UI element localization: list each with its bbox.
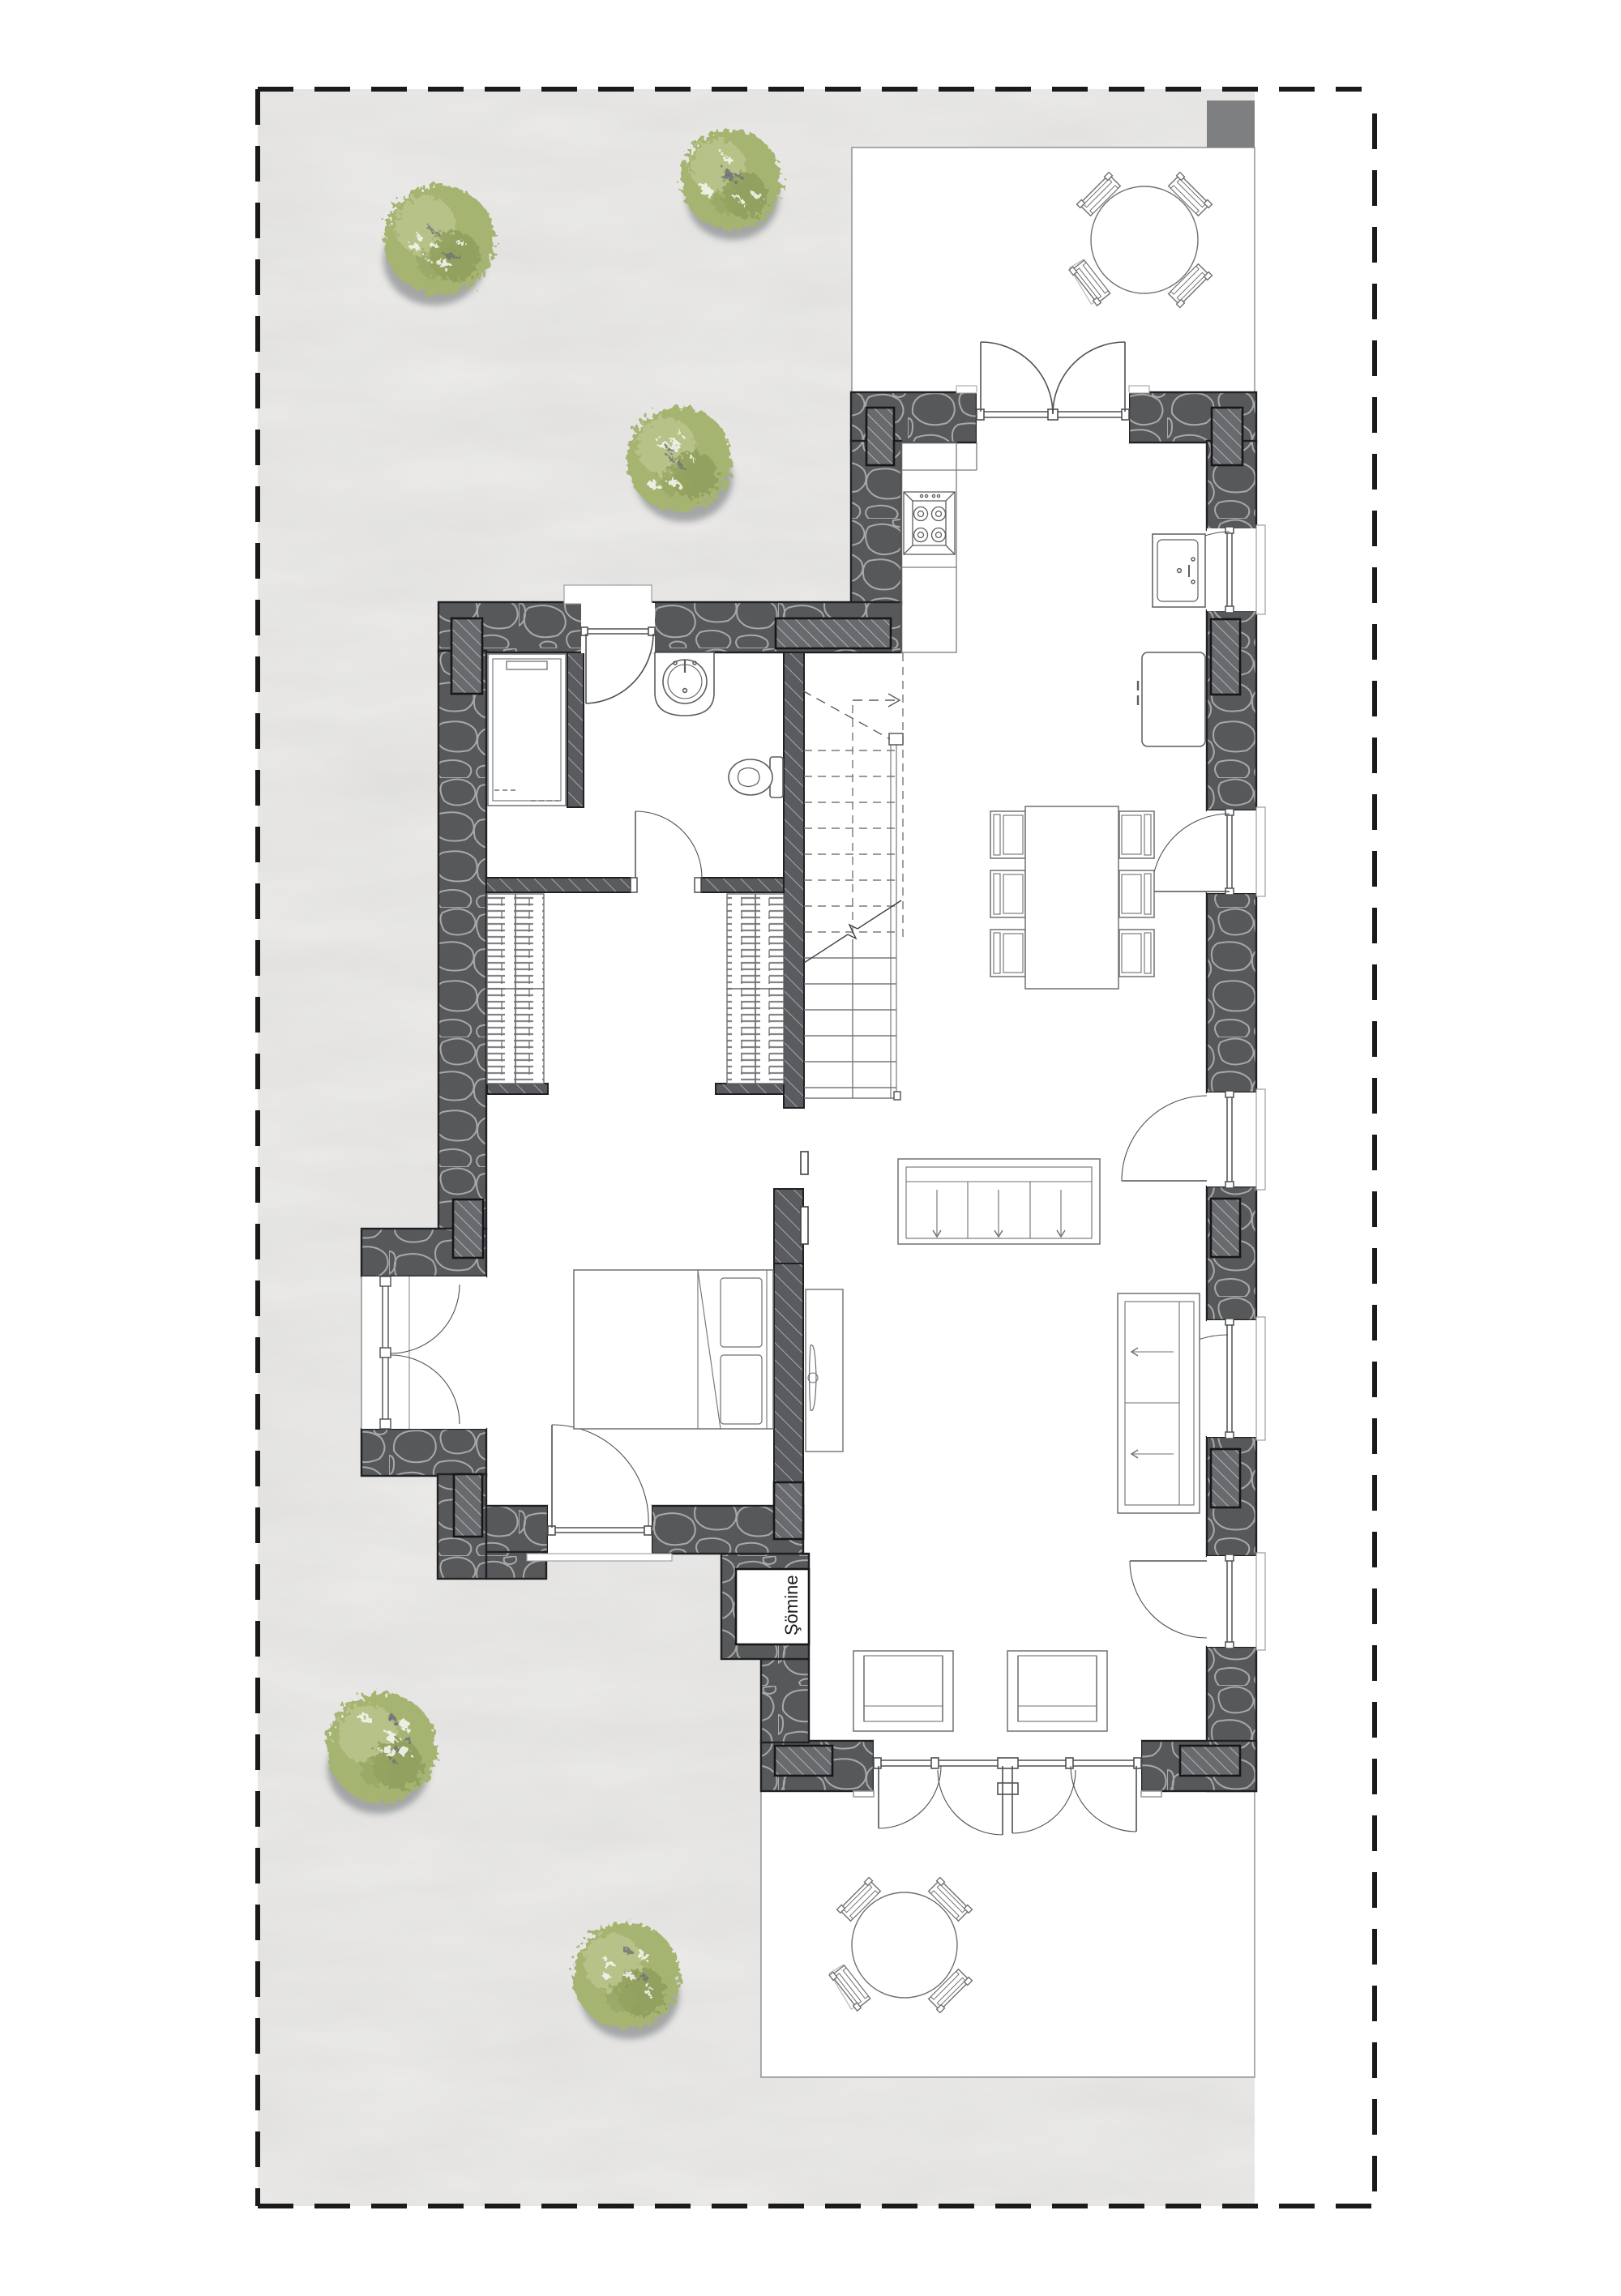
- svg-text:Şömine: Şömine: [781, 1575, 802, 1635]
